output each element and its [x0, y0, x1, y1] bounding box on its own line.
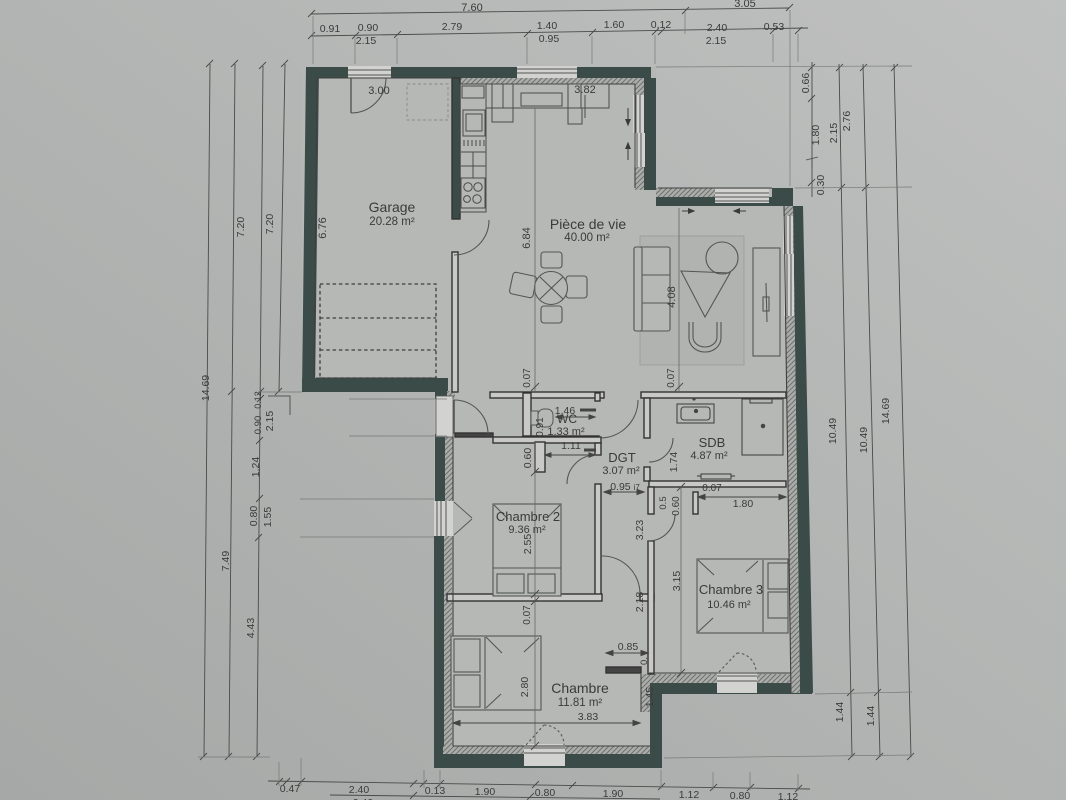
svg-text:7.20: 7.20 — [235, 217, 247, 238]
svg-text:0.80: 0.80 — [535, 787, 556, 799]
svg-text:14.69: 14.69 — [200, 375, 212, 401]
svg-text:0.95: 0.95 — [539, 33, 560, 45]
svg-text:0.80: 0.80 — [730, 790, 751, 800]
svg-text:1.90: 1.90 — [603, 788, 624, 800]
svg-text:1.33 m²: 1.33 m² — [547, 426, 585, 438]
svg-text:1.11: 1.11 — [561, 440, 581, 452]
svg-text:0.53: 0.53 — [764, 21, 785, 33]
svg-text:7.60: 7.60 — [461, 2, 482, 14]
svg-text:3.82: 3.82 — [574, 84, 595, 96]
svg-text:4.43: 4.43 — [245, 618, 257, 639]
svg-text:2.15: 2.15 — [828, 123, 840, 144]
svg-text:1.44: 1.44 — [834, 702, 846, 723]
svg-text:1.46: 1.46 — [555, 405, 576, 417]
svg-text:1.60: 1.60 — [604, 19, 625, 31]
svg-text:1.45: 1.45 — [644, 687, 656, 708]
svg-text:10.49: 10.49 — [827, 418, 839, 444]
svg-text:Chambre 3: Chambre 3 — [699, 582, 763, 597]
svg-text:4.08: 4.08 — [666, 286, 678, 307]
svg-text:0.60: 0.60 — [671, 496, 682, 516]
svg-text:Chambre: Chambre — [551, 680, 609, 696]
svg-text:4.87 m²: 4.87 m² — [690, 450, 728, 462]
svg-text:2.79: 2.79 — [442, 21, 463, 33]
svg-text:3.00: 3.00 — [368, 85, 389, 97]
svg-text:0.91: 0.91 — [320, 23, 341, 35]
svg-text:0.91: 0.91 — [535, 417, 546, 437]
svg-text:1.44: 1.44 — [865, 706, 877, 727]
svg-text:0.07: 0.07 — [522, 368, 533, 388]
svg-text:7.20: 7.20 — [264, 214, 276, 235]
svg-text:2.15: 2.15 — [356, 35, 377, 47]
svg-text:2.18: 2.18 — [634, 592, 646, 613]
svg-text:1.80: 1.80 — [733, 498, 754, 510]
svg-text:1.12: 1.12 — [778, 791, 799, 800]
svg-text:Chambre 2: Chambre 2 — [496, 509, 560, 524]
svg-text:3.07 m²: 3.07 m² — [602, 465, 640, 477]
svg-text:11.81 m²: 11.81 m² — [558, 697, 603, 709]
svg-text:3.15: 3.15 — [671, 571, 683, 592]
svg-text:0.47: 0.47 — [280, 783, 301, 795]
svg-text:3.83: 3.83 — [578, 711, 599, 723]
svg-text:0.12: 0.12 — [253, 391, 263, 409]
svg-text:0.07: 0.07 — [666, 368, 677, 388]
svg-text:14.69: 14.69 — [880, 398, 892, 424]
svg-text:Garage: Garage — [369, 199, 416, 215]
svg-text:0.30: 0.30 — [815, 175, 827, 196]
svg-text:0.95 i7: 0.95 i7 — [610, 481, 640, 493]
svg-text:0.07: 0.07 — [702, 483, 722, 494]
svg-text:3.23: 3.23 — [634, 520, 646, 541]
svg-text:2.40: 2.40 — [707, 22, 728, 34]
svg-text:0.80: 0.80 — [248, 506, 260, 527]
svg-text:2.76: 2.76 — [841, 111, 853, 132]
svg-text:2.40: 2.40 — [349, 784, 370, 796]
svg-text:0.66: 0.66 — [800, 73, 812, 94]
svg-text:1.80: 1.80 — [810, 125, 822, 146]
svg-text:0.07: 0.07 — [522, 605, 533, 625]
svg-text:20.28 m²: 20.28 m² — [369, 216, 415, 228]
svg-text:3.05: 3.05 — [734, 0, 755, 10]
svg-text:7.49: 7.49 — [220, 551, 232, 572]
svg-text:1.90: 1.90 — [475, 786, 496, 798]
svg-text:SDB: SDB — [699, 435, 726, 450]
svg-text:0.90: 0.90 — [253, 416, 264, 435]
svg-text:0.13: 0.13 — [425, 785, 446, 797]
svg-text:0.60: 0.60 — [522, 448, 534, 469]
svg-text:6.84: 6.84 — [521, 227, 533, 248]
svg-text:2.55: 2.55 — [522, 534, 534, 555]
svg-text:10.46 m²: 10.46 m² — [707, 599, 751, 611]
svg-text:10.49: 10.49 — [858, 427, 870, 453]
svg-text:6.76: 6.76 — [317, 217, 329, 238]
svg-text:1.74: 1.74 — [668, 452, 680, 473]
svg-text:1.40: 1.40 — [537, 20, 558, 32]
svg-text:0.85: 0.85 — [618, 641, 639, 653]
svg-text:1.12: 1.12 — [679, 789, 700, 800]
svg-text:2.15: 2.15 — [706, 35, 727, 47]
svg-text:40.00 m²: 40.00 m² — [564, 232, 610, 244]
svg-text:0.5: 0.5 — [658, 496, 669, 509]
svg-text:0.12: 0.12 — [651, 19, 672, 31]
svg-text:DGT: DGT — [608, 450, 636, 465]
svg-text:1.55: 1.55 — [262, 507, 274, 528]
svg-text:2.15: 2.15 — [264, 411, 276, 432]
svg-text:Pièce de vie: Pièce de vie — [550, 216, 626, 232]
svg-text:0.: 0. — [639, 657, 650, 665]
svg-text:0.90: 0.90 — [358, 22, 379, 34]
svg-text:2.80: 2.80 — [519, 677, 531, 698]
svg-text:1.24: 1.24 — [250, 457, 262, 478]
